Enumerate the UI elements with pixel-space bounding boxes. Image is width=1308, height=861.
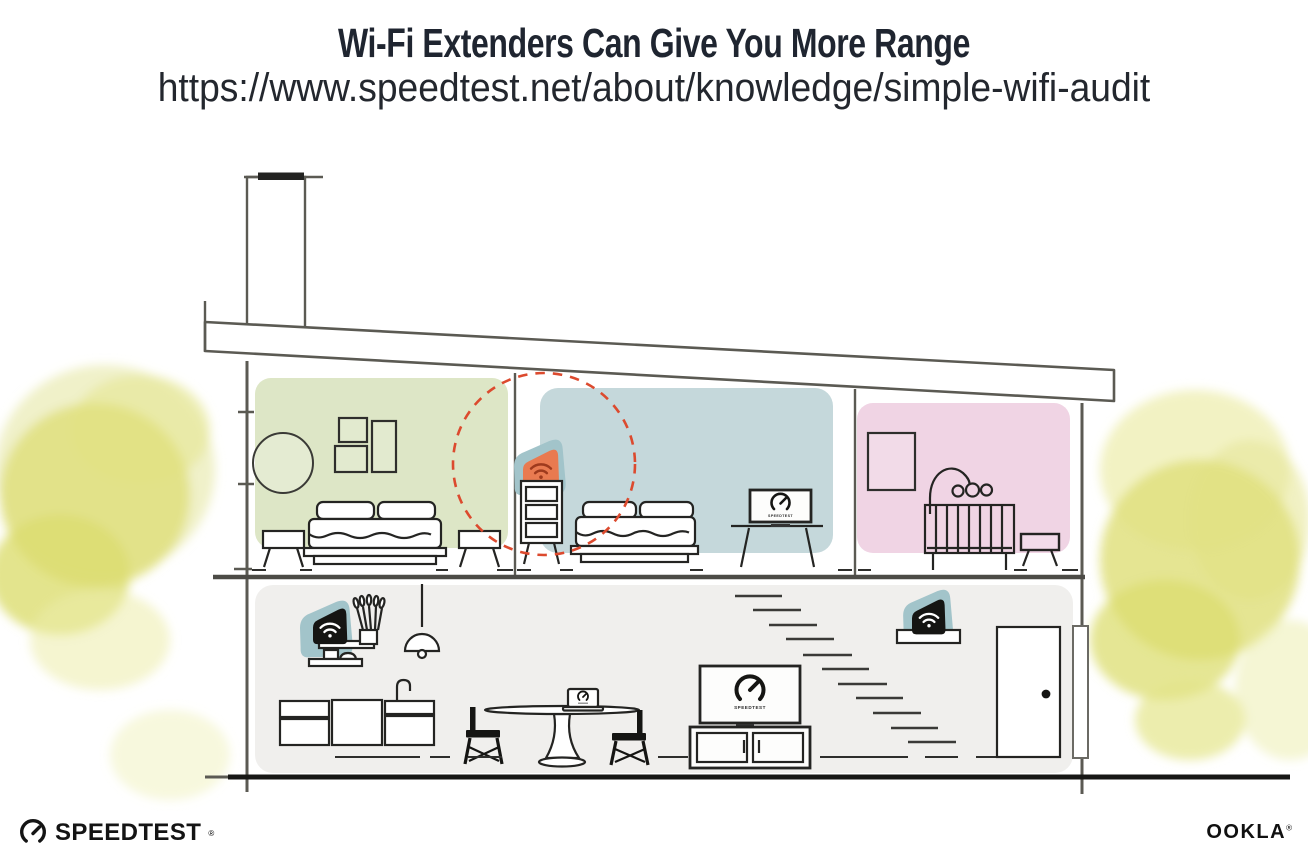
wall-frame: [335, 446, 367, 472]
dresser: [521, 481, 562, 564]
cup: [324, 650, 338, 659]
speedtest-gauge-icon: [18, 818, 48, 848]
foliage-right: [1090, 390, 1308, 760]
trademark-mark: ®: [208, 829, 214, 838]
stool: [1021, 534, 1059, 566]
chimney: [244, 173, 323, 331]
tv-label: SPEEDTEST: [734, 705, 766, 710]
infographic-page: SPEEDTEST: [0, 0, 1308, 861]
round-mirror: [253, 433, 313, 493]
wall-frame: [372, 421, 396, 472]
living-room: SPEEDTEST: [690, 666, 810, 768]
ookla-wordmark: OOKLA: [1206, 821, 1286, 843]
source-url: https://www.speedtest.net/about/knowledg…: [46, 66, 1262, 111]
bed: [571, 502, 698, 562]
wall-pillar: [1073, 626, 1088, 758]
tv-console: [690, 727, 810, 768]
wall-frame: [339, 418, 367, 442]
speedtest-logo: SPEEDTEST®: [18, 818, 214, 848]
nightstand: [263, 531, 304, 567]
page-title: Wi-Fi Extenders Can Give You More Range: [144, 20, 1164, 67]
house-illustration: SPEEDTEST: [0, 0, 1308, 861]
speedtest-wordmark: SPEEDTEST: [55, 819, 201, 847]
wall-frame: [868, 433, 915, 490]
bed: [304, 502, 446, 564]
foliage-left: [0, 365, 230, 800]
trademark-mark: ®: [1286, 823, 1292, 832]
door: [997, 627, 1060, 757]
nightstand: [459, 531, 500, 567]
tv-label: SPEEDTEST: [768, 514, 793, 518]
laptop: [563, 689, 603, 711]
door-knob: [1042, 690, 1051, 699]
ookla-logo: OOKLA®: [1206, 821, 1292, 844]
